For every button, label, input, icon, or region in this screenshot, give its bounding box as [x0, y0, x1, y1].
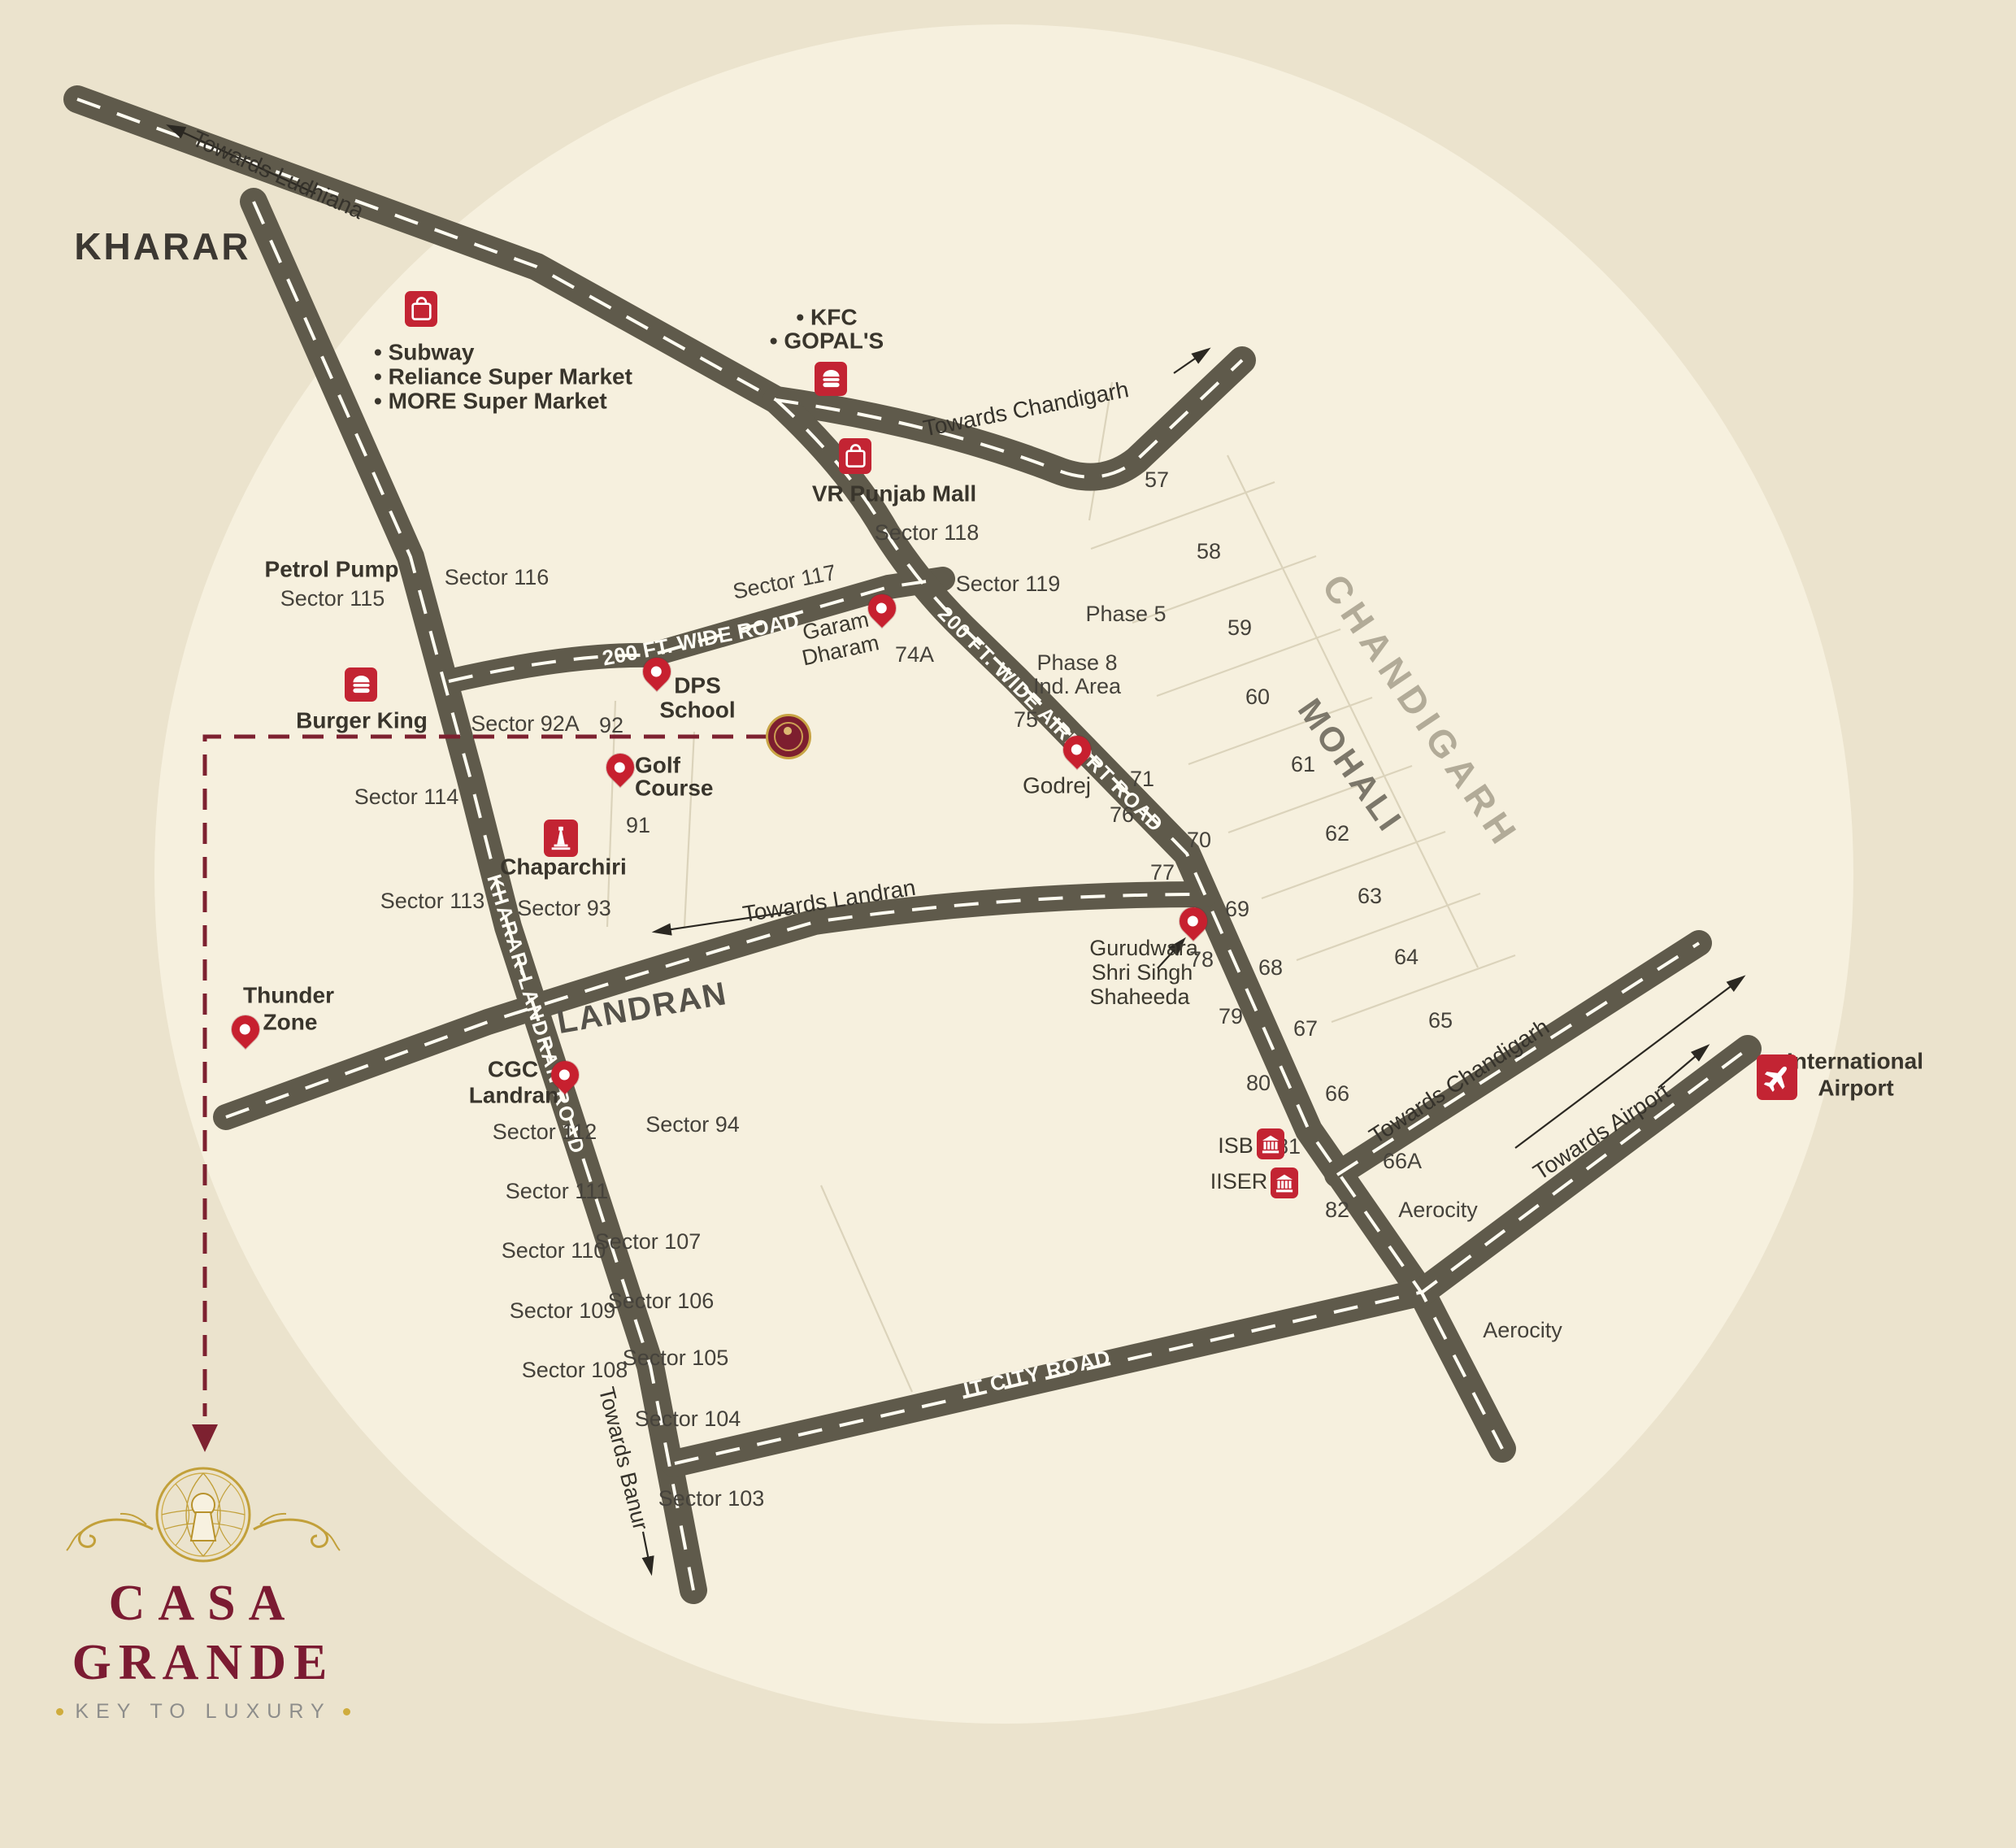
casa-grande-logo: CASA GRANDE KEY TO LUXURY [33, 1454, 374, 1724]
gold-dot-icon [343, 1708, 350, 1715]
casa-grande-emblem-icon [65, 1454, 341, 1576]
road-center-dashes [77, 99, 1748, 1590]
roads [77, 99, 1748, 1590]
logo-grande-text: GRANDE [33, 1634, 374, 1692]
logo-tagline: KEY TO LUXURY [33, 1700, 374, 1724]
gurudwara-pointer-arrow-icon [1158, 940, 1184, 968]
direction-arrows [169, 126, 1743, 1572]
towards-banur-arrow-icon [643, 1532, 651, 1572]
logo-tagline-text: KEY TO LUXURY [75, 1700, 331, 1724]
gold-dot-icon [56, 1708, 63, 1715]
towards-chandigarh-top-arrow-icon [1174, 350, 1208, 373]
logo-casa-text: CASA [33, 1575, 374, 1633]
towards-ludhiana-arrow-icon [169, 126, 315, 193]
casa-grande-location-map: KHARARLANDRANCHANDIGARHMOHALITowards Lud… [0, 0, 2016, 1848]
connector-arrowhead-icon [192, 1424, 218, 1452]
